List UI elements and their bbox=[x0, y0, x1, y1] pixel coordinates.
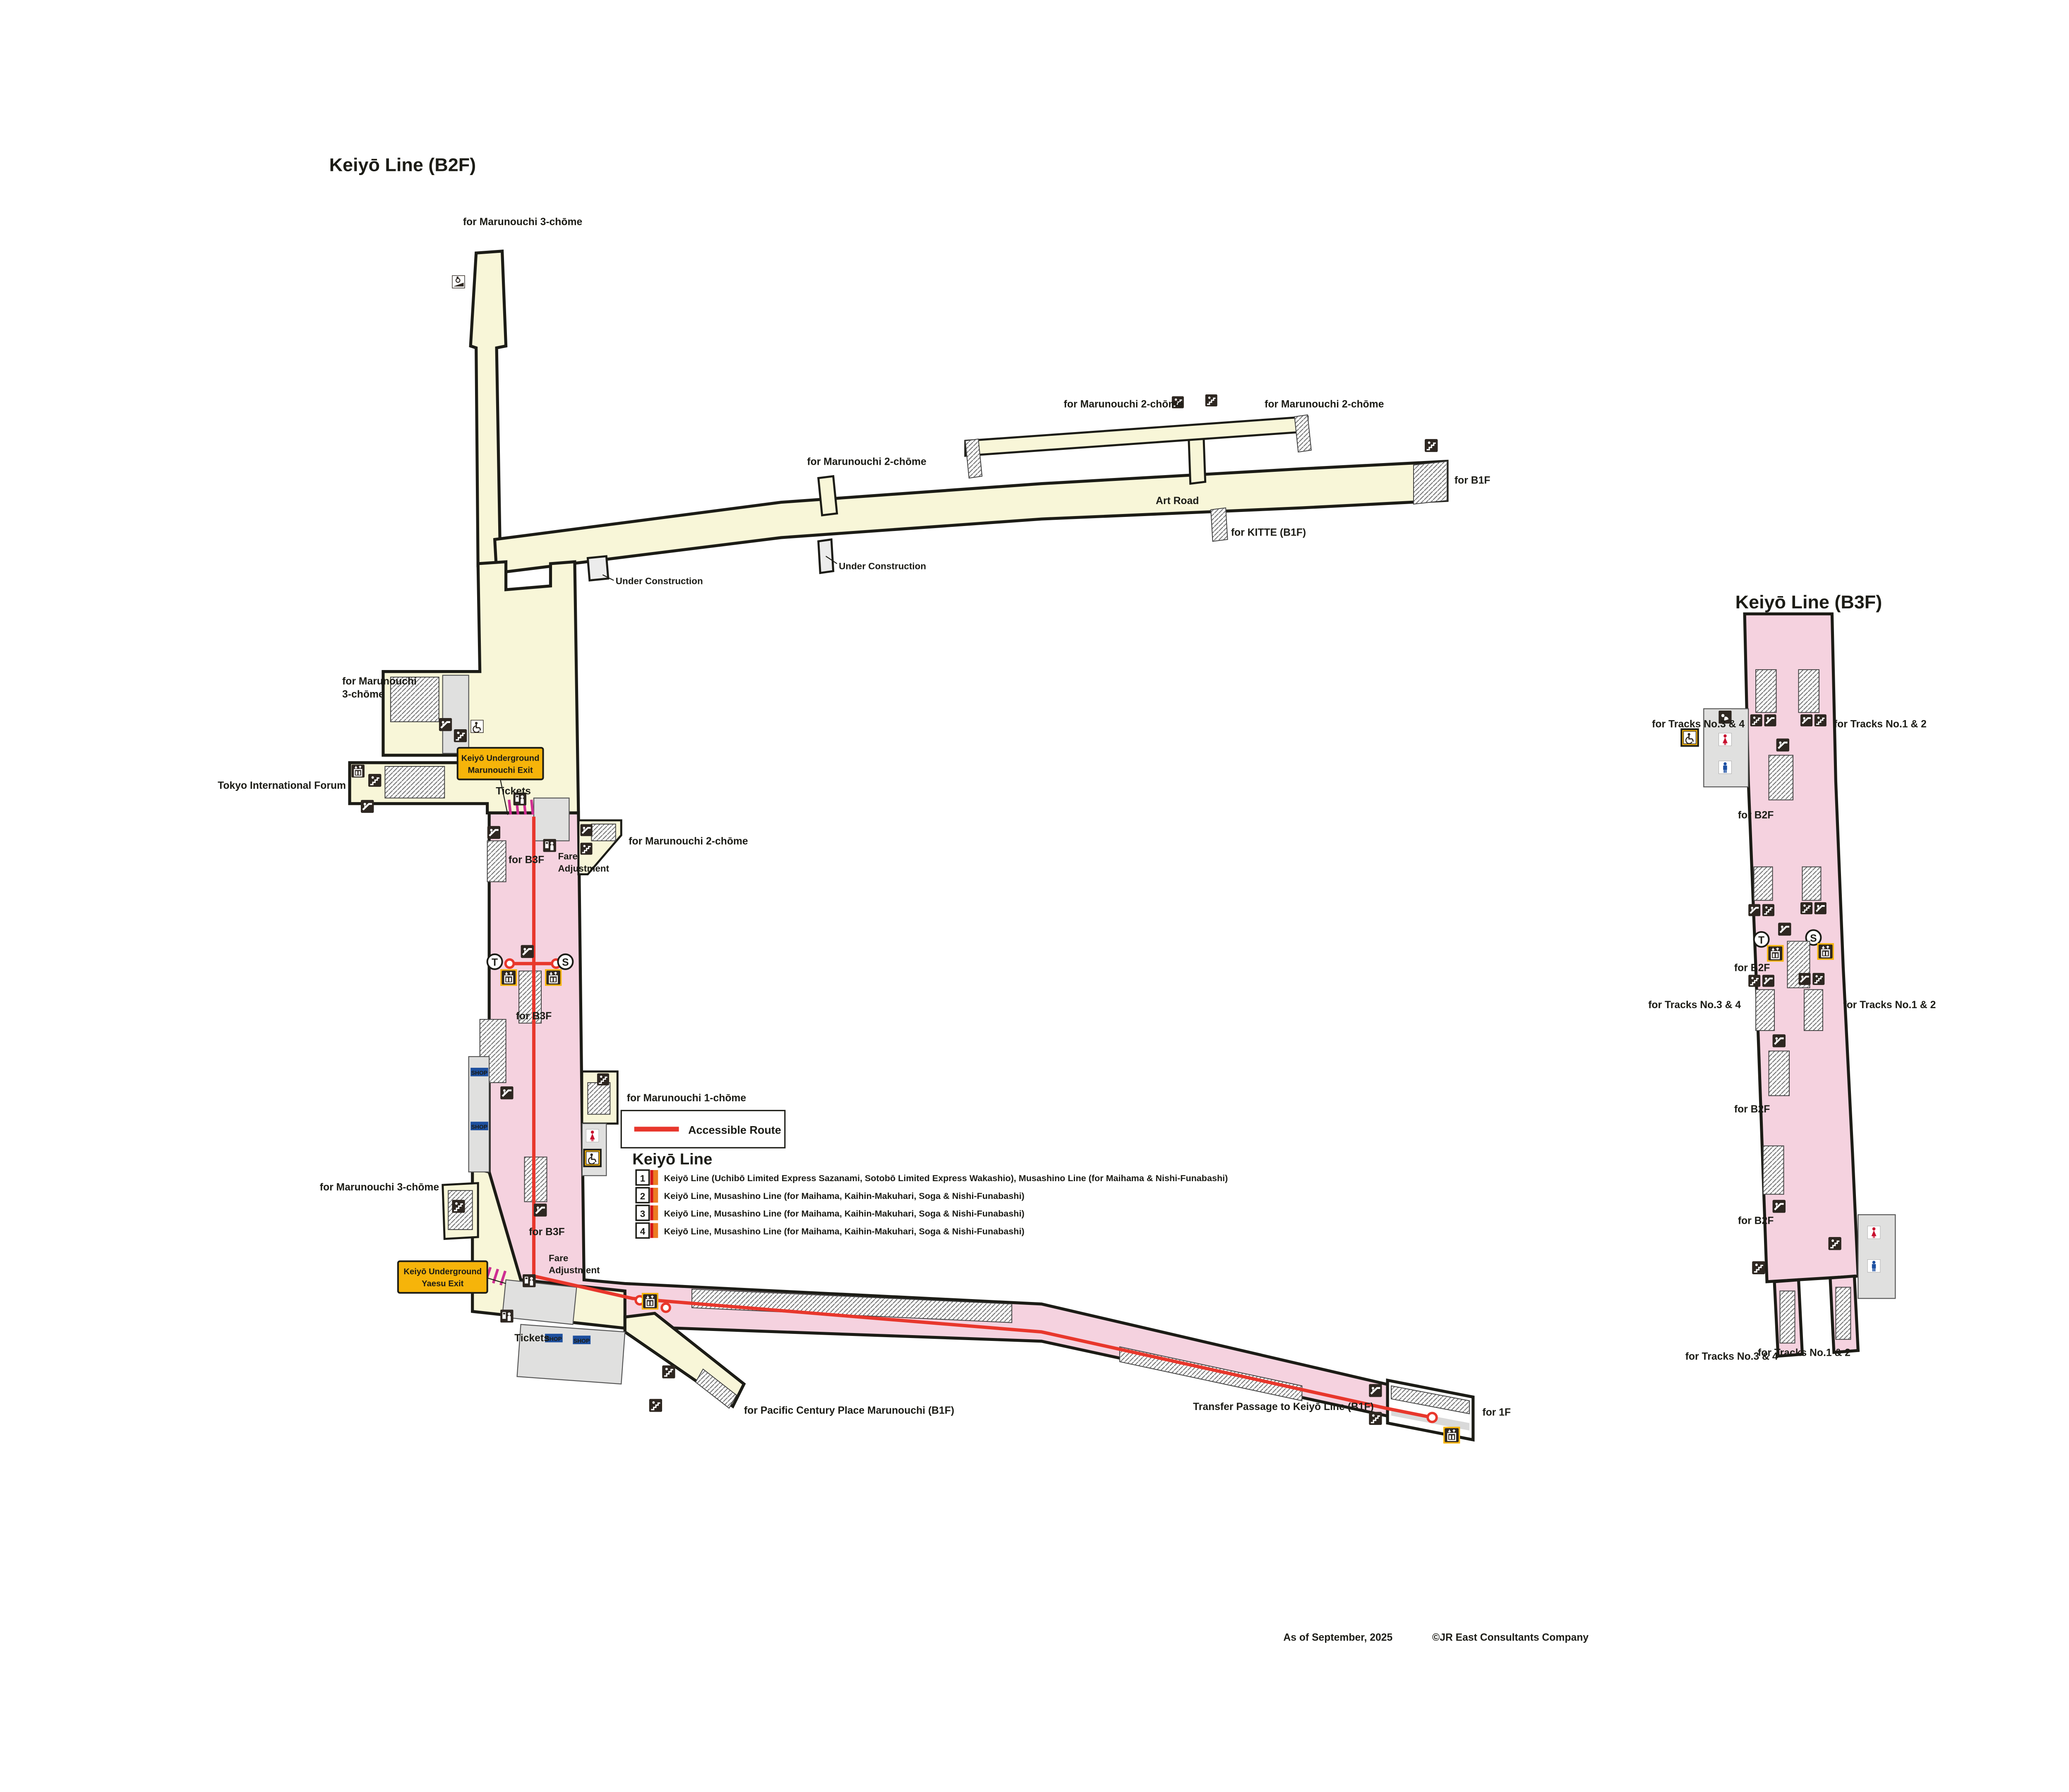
tickets-label: Tickets bbox=[514, 1333, 550, 1344]
tickets-label: Tickets bbox=[496, 786, 531, 797]
legend-item-desc: Keiyō Line, Musashino Line (for Maihama,… bbox=[664, 1191, 1025, 1201]
fare-adjustment-line1: Fare bbox=[558, 851, 577, 862]
legend-item: 4 Keiyō Line, Musashino Line (for Maiham… bbox=[636, 1223, 1024, 1238]
escalator-icon bbox=[534, 1203, 547, 1216]
footer-copyright: ©JR East Consultants Company bbox=[1432, 1632, 1589, 1643]
b2f-north-corridor-shape bbox=[470, 251, 506, 566]
accessible-route-label: Accessible Route bbox=[688, 1124, 781, 1136]
ticket-machine-icon bbox=[523, 1274, 535, 1287]
tracks34-label: for Tracks No.3 & 4 bbox=[1648, 999, 1741, 1011]
elevator-s-label: S bbox=[1810, 933, 1817, 944]
b2f-under-construction-stub-2 bbox=[588, 556, 608, 580]
marunouchi-exit-line2: Marunouchi Exit bbox=[468, 766, 533, 775]
b2f-marunouchi1-stairs-hatch bbox=[588, 1083, 610, 1114]
shop-label: SHOP bbox=[574, 1337, 590, 1344]
stairs-icon bbox=[597, 1073, 609, 1085]
escalator-icon bbox=[1773, 1034, 1786, 1047]
wheelchair-icon bbox=[470, 720, 483, 733]
marunouchi2-stub-label: for Marunouchi 2-chōme bbox=[629, 836, 748, 847]
stairs-icon bbox=[1425, 439, 1438, 452]
marunouchi2-label: for Marunouchi 2-chōme bbox=[807, 456, 926, 468]
marunouchi3-bottom-label: for Marunouchi 3-chōme bbox=[320, 1182, 439, 1193]
marunouchi3-left-line1: for Marunouchi bbox=[342, 676, 417, 687]
womens-toilet-icon bbox=[586, 1129, 599, 1142]
wheelchair-ramp-icon bbox=[452, 275, 465, 288]
track-number: 2 bbox=[640, 1191, 646, 1201]
marunouchi1-label: for Marunouchi 1-chōme bbox=[627, 1093, 746, 1104]
stairs-icon bbox=[580, 843, 592, 855]
b2f-stub-stairs-hatch bbox=[591, 824, 615, 841]
b2f-ticket-gate-block-top bbox=[534, 798, 569, 841]
stairs-icon bbox=[1205, 394, 1217, 406]
marunouchi3-top-label: for Marunouchi 3-chōme bbox=[463, 216, 582, 228]
shop-label: SHOP bbox=[471, 1069, 487, 1076]
stairs-icon bbox=[1815, 714, 1827, 726]
b2f-kitte-stub bbox=[1211, 508, 1227, 541]
under-construction-label: Under Construction bbox=[616, 576, 703, 586]
tracks12-label: for Tracks No.1 & 2 bbox=[1843, 999, 1936, 1011]
tracks12-label: for Tracks No.1 & 2 bbox=[1758, 1348, 1851, 1359]
stairs-icon bbox=[368, 774, 381, 787]
b3f-map: Keiyō Line (B3F) for Tracks No.3 & 4 for… bbox=[1648, 591, 1936, 1362]
b3f-stairs-shaft bbox=[1754, 867, 1773, 901]
stairs-icon bbox=[454, 729, 467, 742]
escalator-icon bbox=[1773, 1200, 1786, 1213]
tokyo-forum-label: Tokyo International Forum bbox=[218, 780, 346, 791]
b3f-escalator-shaft bbox=[1769, 755, 1793, 800]
womens-toilet-icon bbox=[1867, 1226, 1880, 1239]
legend-item: 1 Keiyō Line (Uchibō Limited Express Saz… bbox=[636, 1170, 1228, 1185]
elevator-icon bbox=[352, 764, 365, 777]
marunouchi2-label: for Marunouchi 2-chōme bbox=[1064, 399, 1183, 410]
b2f-map: Keiyō Line (B2F) bbox=[218, 154, 1589, 1643]
footer-date: As of September, 2025 bbox=[1283, 1632, 1392, 1643]
for-b3f-label: for B3F bbox=[516, 1011, 552, 1022]
art-road-label: Art Road bbox=[1156, 495, 1199, 507]
b2f-forum-stairs-hatch bbox=[385, 766, 444, 798]
legend-item: 2 Keiyō Line, Musashino Line (for Maiham… bbox=[636, 1188, 1024, 1203]
stairs-icon bbox=[1750, 714, 1762, 726]
accessible-elevator-icon bbox=[642, 1293, 658, 1309]
fare-adjustment-line2: Adjustment bbox=[558, 863, 609, 874]
escalator-icon bbox=[500, 1086, 513, 1099]
stairs-icon bbox=[1748, 975, 1760, 987]
accessible-elevator-icon bbox=[500, 969, 517, 986]
escalator-icon bbox=[521, 945, 534, 958]
b3f-leg-stairs bbox=[1780, 1291, 1795, 1343]
b3f-stairs-shaft bbox=[1802, 867, 1821, 901]
kitte-label: for KITTE (B1F) bbox=[1231, 527, 1306, 538]
b2f-forb3f-shaft-bottom bbox=[525, 1157, 547, 1202]
escalator-icon bbox=[1815, 902, 1827, 914]
wheelchair-icon bbox=[586, 1151, 599, 1164]
for-b3f-label: for B3F bbox=[529, 1227, 565, 1238]
b2f-top-stub-right bbox=[1294, 415, 1311, 452]
shop-label: SHOP bbox=[471, 1123, 487, 1130]
stairs-icon bbox=[1762, 904, 1774, 916]
marunouchi-exit-line1: Keiyō Underground bbox=[461, 754, 540, 763]
fare-adjustment-line1: Fare bbox=[549, 1253, 568, 1263]
b3f-escalator-shaft bbox=[1769, 1051, 1789, 1096]
fare-adjustment-line2: Adjustment bbox=[549, 1265, 600, 1276]
b3f-leg-stairs bbox=[1836, 1287, 1851, 1339]
pcp-label: for Pacific Century Place Marunouchi (B1… bbox=[744, 1405, 954, 1416]
escalator-icon bbox=[1369, 1384, 1382, 1397]
b1f-label: for B1F bbox=[1455, 475, 1491, 486]
wheelchair-icon bbox=[1683, 731, 1696, 744]
escalator-icon bbox=[1762, 975, 1774, 987]
route-node bbox=[1428, 1413, 1437, 1422]
accessible-elevator-icon bbox=[1767, 945, 1783, 961]
b2f-marunouchi2-up-stub bbox=[818, 476, 837, 515]
station-map-canvas: Keiyō Line (B2F) bbox=[0, 0, 2069, 1791]
legend-item-desc: Keiyō Line, Musashino Line (for Maihama,… bbox=[664, 1226, 1025, 1236]
track-number: 3 bbox=[640, 1208, 646, 1219]
for-b2f-label: for B2F bbox=[1738, 1215, 1774, 1227]
track-number: 1 bbox=[640, 1173, 646, 1184]
elevator-t-label: T bbox=[492, 957, 498, 968]
b3f-stairs-shaft bbox=[1804, 990, 1823, 1031]
stairs-icon bbox=[649, 1399, 662, 1412]
b2f-forb3f-shaft-top bbox=[487, 841, 506, 882]
station-map-page: Keiyō Line (B2F) bbox=[0, 0, 2069, 1791]
escalator-icon bbox=[1800, 714, 1812, 726]
for-1f-label: for 1F bbox=[1482, 1407, 1511, 1418]
womens-toilet-icon bbox=[1719, 733, 1731, 746]
tracks12-label: for Tracks No.1 & 2 bbox=[1834, 718, 1927, 730]
stairs-icon bbox=[1828, 1237, 1841, 1250]
mens-toilet-icon bbox=[1719, 761, 1731, 773]
accessible-elevator-icon bbox=[1817, 943, 1834, 960]
accessible-elevator-icon bbox=[545, 969, 562, 986]
b3f-title: Keiyō Line (B3F) bbox=[1735, 591, 1882, 613]
b3f-stairs-shaft bbox=[1756, 670, 1776, 712]
escalator-icon bbox=[487, 826, 500, 839]
stairs-icon bbox=[1752, 1261, 1765, 1274]
stairs-icon bbox=[1800, 902, 1812, 914]
under-construction-label: Under Construction bbox=[839, 561, 926, 571]
transfer-passage-label: Transfer Passage to Keiyō Line (B1F) bbox=[1193, 1401, 1374, 1412]
marunouchi2-label: for Marunouchi 2-chōme bbox=[1265, 399, 1384, 410]
escalator-icon bbox=[361, 800, 374, 813]
legend-item-desc: Keiyō Line (Uchibō Limited Express Sazan… bbox=[664, 1173, 1228, 1183]
legend-item: 3 Keiyō Line, Musashino Line (for Maiham… bbox=[636, 1206, 1024, 1220]
legend-item-desc: Keiyō Line, Musashino Line (for Maihama,… bbox=[664, 1208, 1025, 1219]
escalator-icon bbox=[580, 824, 592, 836]
b3f-stairs-shaft bbox=[1798, 670, 1819, 712]
elevator-t-label: T bbox=[1758, 935, 1764, 946]
route-node bbox=[506, 959, 514, 968]
for-b2f-label: for B2F bbox=[1734, 962, 1770, 973]
b3f-stairs-shaft bbox=[1756, 990, 1774, 1031]
route-node bbox=[662, 1304, 670, 1312]
ticket-machine-icon bbox=[543, 839, 556, 852]
escalator-icon bbox=[1764, 714, 1776, 726]
b3f-escalator-shaft bbox=[1763, 1146, 1783, 1194]
tracks34-label: for Tracks No.3 & 4 bbox=[1652, 718, 1745, 730]
for-b2f-label: for B2F bbox=[1734, 1104, 1770, 1115]
yaesu-exit-line2: Yaesu Exit bbox=[422, 1279, 463, 1288]
track-number: 4 bbox=[640, 1226, 646, 1237]
elevator-s-label: S bbox=[562, 957, 569, 968]
escalator-icon bbox=[1776, 738, 1789, 751]
ticket-machine-icon bbox=[500, 1309, 513, 1322]
stairs-icon bbox=[1812, 973, 1824, 985]
mens-toilet-icon bbox=[1867, 1259, 1880, 1272]
escalator-icon bbox=[439, 718, 452, 731]
stairs-icon bbox=[1369, 1412, 1382, 1425]
escalator-icon bbox=[1778, 922, 1791, 935]
b2f-top-thin-corridor-shape bbox=[965, 417, 1308, 456]
stairs-icon bbox=[452, 1200, 465, 1213]
for-b2f-label: for B2F bbox=[1738, 810, 1774, 821]
stairs-icon bbox=[662, 1365, 675, 1378]
marunouchi3-left-line2: 3-chōme bbox=[342, 689, 384, 700]
for-b3f-label: for B3F bbox=[509, 855, 545, 866]
legend-header: Keiyō Line bbox=[632, 1151, 712, 1168]
accessible-elevator-icon bbox=[1443, 1427, 1460, 1444]
escalator-icon bbox=[1748, 904, 1760, 916]
b2f-under-construction-stub-1 bbox=[818, 539, 833, 573]
b2f-b1f-stairs-hatch bbox=[1414, 461, 1447, 504]
yaesu-exit-line1: Keiyō Underground bbox=[403, 1267, 482, 1276]
b2f-title: Keiyō Line (B2F) bbox=[329, 154, 476, 175]
legend: Accessible Route Keiyō Line 1 Keiyō Line… bbox=[621, 1110, 1228, 1238]
escalator-icon bbox=[1798, 973, 1810, 985]
